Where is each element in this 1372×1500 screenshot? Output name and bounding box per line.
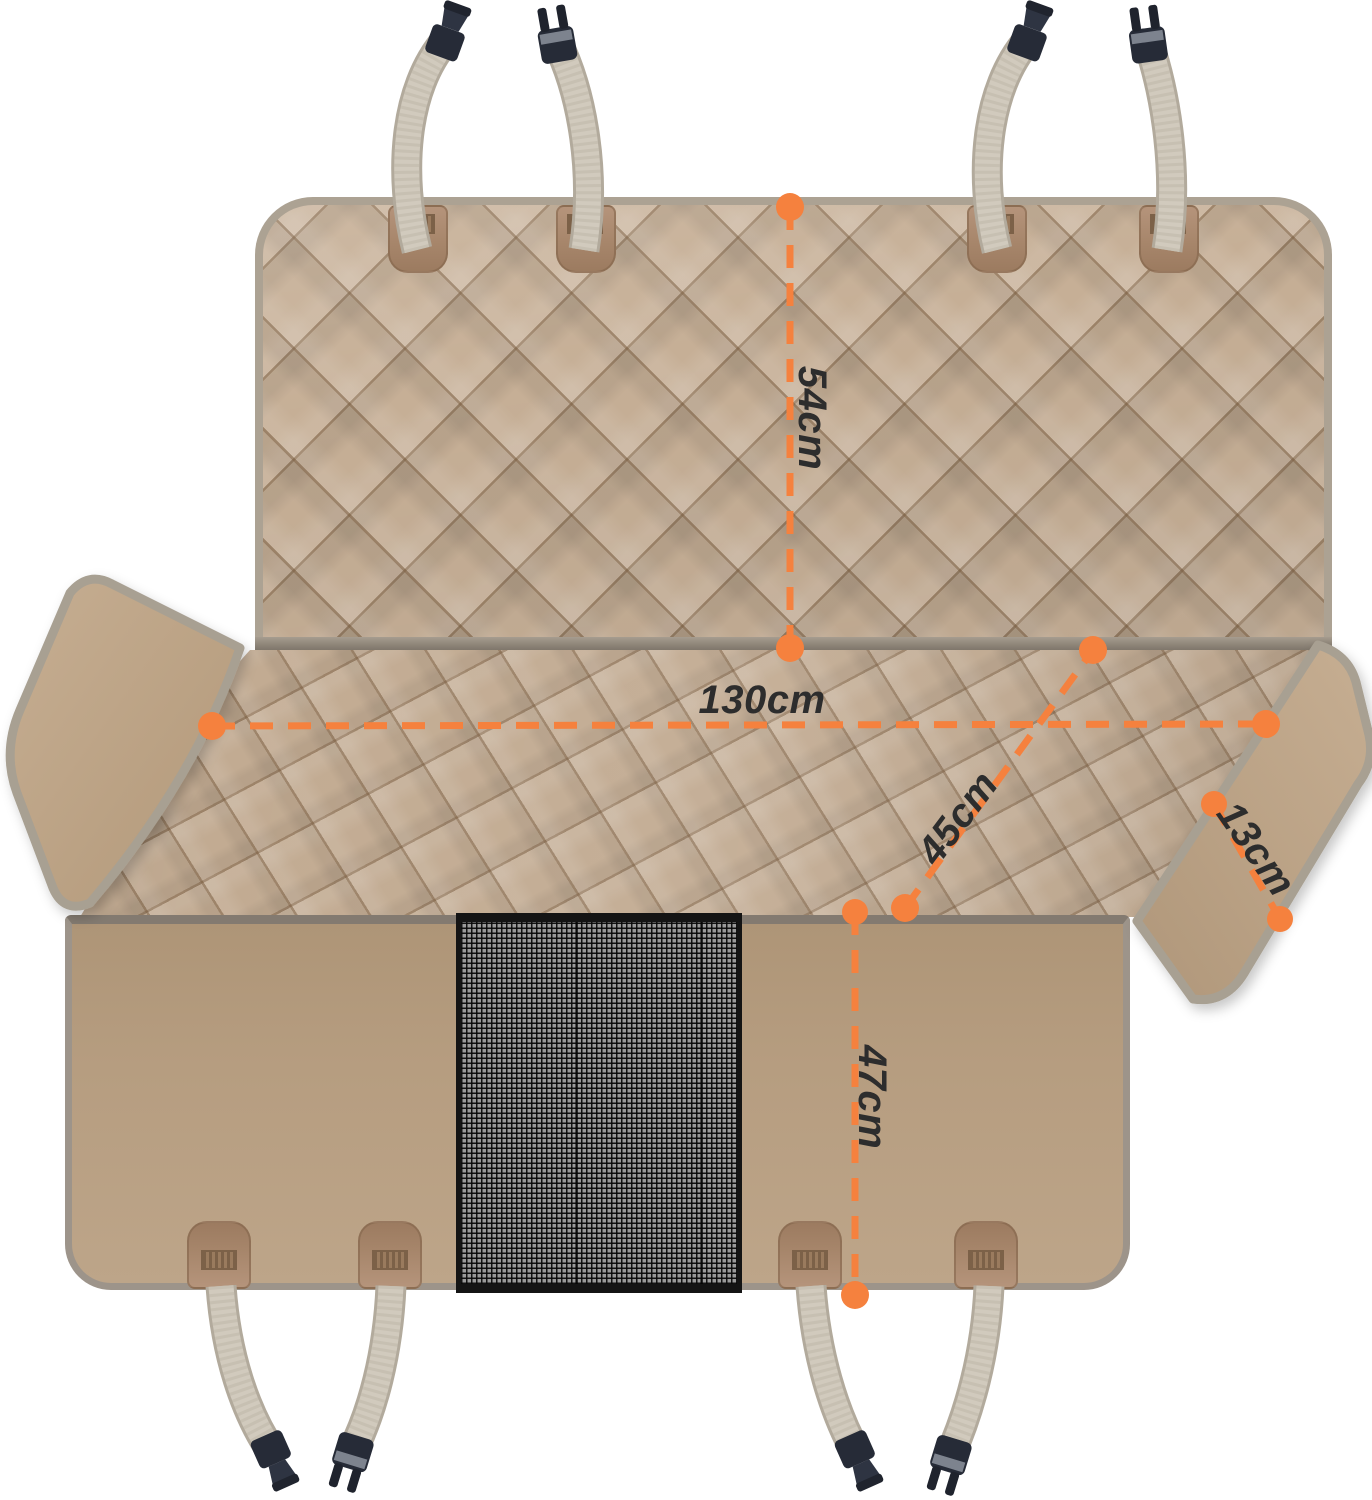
stitch-box bbox=[1150, 214, 1186, 234]
mesh-fold-line bbox=[700, 922, 703, 1284]
seat-anchor-strap bbox=[811, 1286, 856, 1452]
stitch-box bbox=[399, 214, 435, 234]
buckle-male-icon bbox=[424, 0, 475, 63]
buckle-female-icon bbox=[324, 1431, 375, 1495]
seat-anchor-strap bbox=[352, 1286, 391, 1452]
product-dimension-diagram: 54cm 130cm 45cm 13cm 47cm bbox=[0, 0, 1372, 1500]
buckle-male-icon bbox=[1006, 0, 1057, 63]
seat-anchor-strap bbox=[221, 1286, 272, 1452]
mesh-window bbox=[456, 913, 742, 1293]
backrest-seat-seam bbox=[255, 637, 1332, 650]
mesh-fold-line bbox=[575, 922, 578, 1284]
stitch-box bbox=[201, 1250, 237, 1270]
dimension-label-total-width: 130cm bbox=[698, 680, 825, 720]
buckle-male-icon bbox=[249, 1429, 303, 1494]
seat-anchor-strap bbox=[950, 1286, 989, 1455]
dimension-label-backrest-height: 54cm bbox=[792, 366, 832, 470]
dimension-label-side-flap-width: 13cm bbox=[1210, 795, 1303, 903]
buckle-female-icon bbox=[1125, 4, 1168, 64]
bottom-straps bbox=[221, 1286, 989, 1455]
dimension-label-front-drop-height: 47cm bbox=[852, 1045, 892, 1149]
stitch-box bbox=[372, 1250, 408, 1270]
stitch-box bbox=[968, 1250, 1004, 1270]
buckle-female-icon bbox=[533, 3, 578, 64]
stitch-box bbox=[567, 214, 603, 234]
stitch-box bbox=[978, 214, 1014, 234]
buckle-female-icon bbox=[922, 1434, 973, 1498]
stitch-box bbox=[792, 1250, 828, 1270]
buckle-male-icon bbox=[833, 1429, 887, 1494]
